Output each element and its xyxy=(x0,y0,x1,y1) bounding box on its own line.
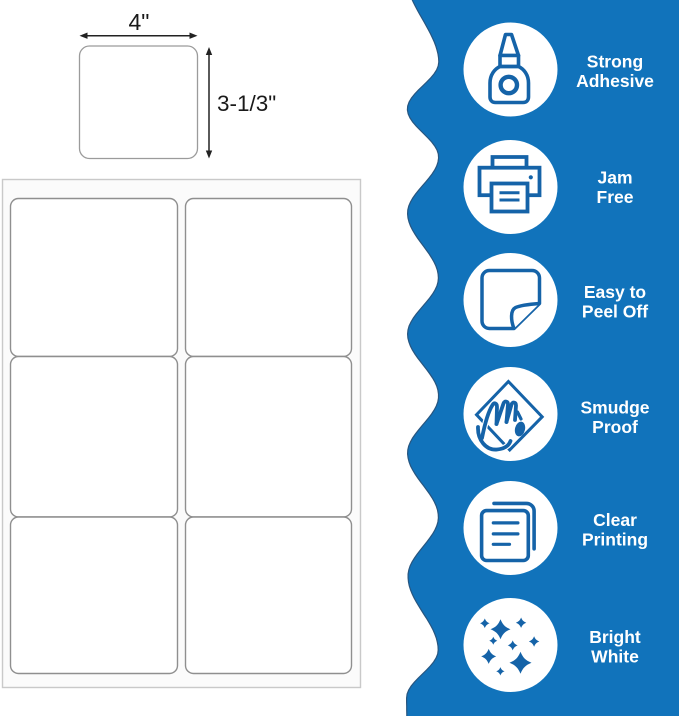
svg-text:Peel Off: Peel Off xyxy=(582,302,648,322)
svg-text:Printing: Printing xyxy=(582,530,648,550)
svg-text:White: White xyxy=(591,647,639,667)
svg-text:Jam: Jam xyxy=(597,168,632,188)
svg-text:Free: Free xyxy=(597,187,634,207)
svg-text:Clear: Clear xyxy=(593,510,637,530)
svg-text:Smudge: Smudge xyxy=(580,398,649,418)
svg-text:3-1/3": 3-1/3" xyxy=(217,91,276,116)
svg-text:Strong: Strong xyxy=(587,52,643,72)
svg-text:Proof: Proof xyxy=(592,417,638,437)
svg-text:4": 4" xyxy=(129,9,150,35)
svg-text:Easy to: Easy to xyxy=(584,282,646,302)
svg-text:Bright: Bright xyxy=(589,627,641,647)
svg-text:Adhesive: Adhesive xyxy=(576,71,654,91)
